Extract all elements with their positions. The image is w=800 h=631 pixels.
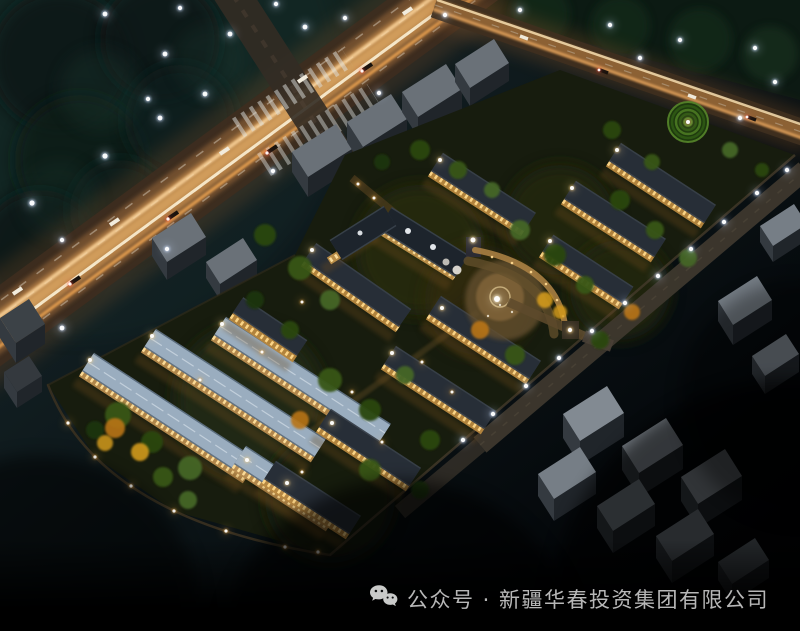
rendering-canvas xyxy=(0,0,800,631)
wechat-icon xyxy=(369,587,398,612)
caption: 公众号 · 新疆华春投资集团有限公司 xyxy=(369,584,769,614)
caption-text: 公众号 · 新疆华春投资集团有限公司 xyxy=(407,584,769,614)
aerial-night-rendering: 公众号 · 新疆华春投资集团有限公司 xyxy=(0,0,800,631)
